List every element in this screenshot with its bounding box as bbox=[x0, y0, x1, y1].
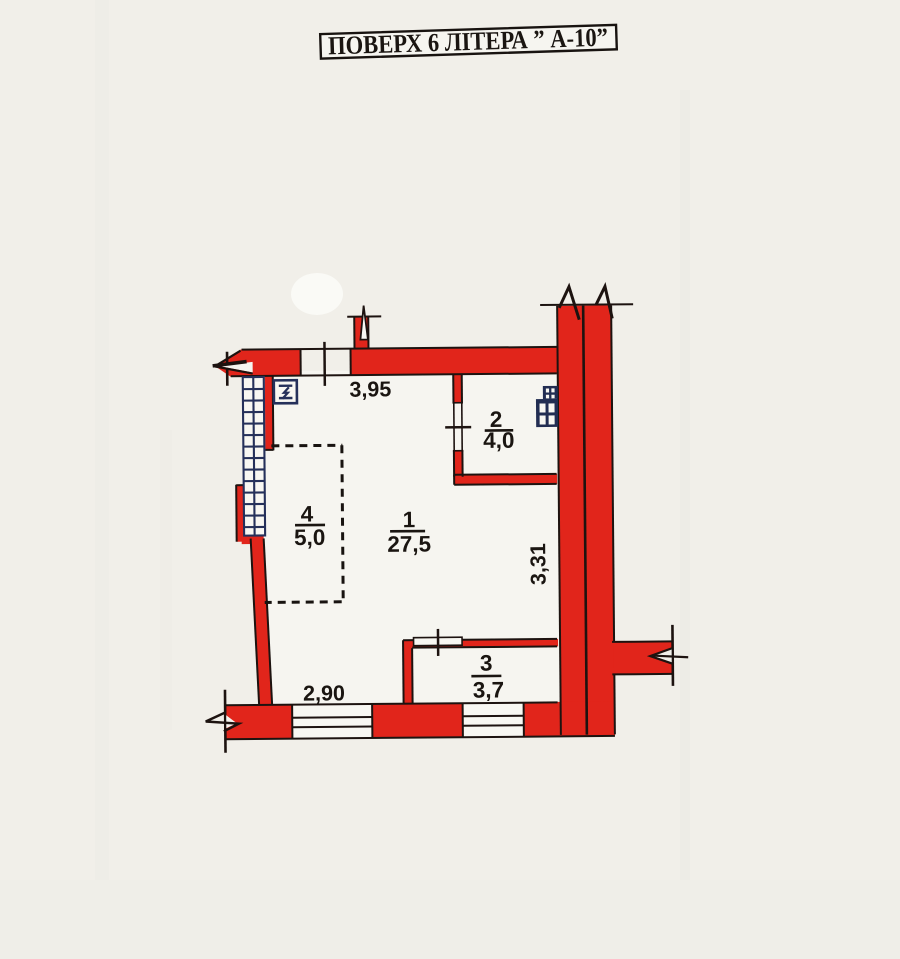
svg-text:27,5: 27,5 bbox=[387, 531, 431, 556]
svg-text:3,31: 3,31 bbox=[526, 543, 550, 585]
svg-text:4: 4 bbox=[301, 502, 314, 527]
svg-text:2,90: 2,90 bbox=[303, 681, 345, 705]
svg-text:3: 3 bbox=[480, 650, 493, 675]
svg-text:3,95: 3,95 bbox=[349, 377, 391, 401]
svg-text:5,0: 5,0 bbox=[294, 525, 325, 550]
svg-text:1: 1 bbox=[403, 507, 416, 532]
svg-text:3,7: 3,7 bbox=[473, 677, 504, 702]
